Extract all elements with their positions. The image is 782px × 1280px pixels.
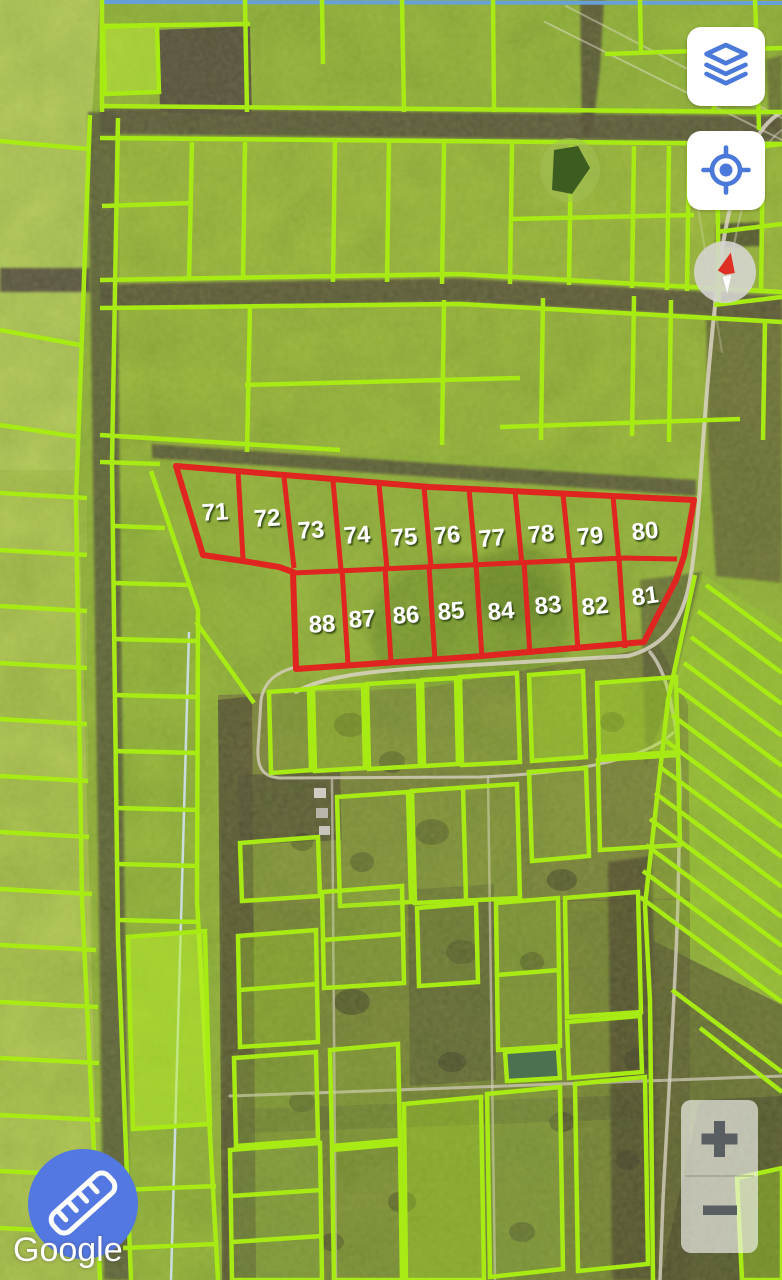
svg-text:80: 80 xyxy=(630,517,659,547)
svg-text:72: 72 xyxy=(253,504,281,532)
svg-text:84: 84 xyxy=(487,597,517,626)
svg-text:75: 75 xyxy=(390,523,419,552)
svg-text:79: 79 xyxy=(576,522,605,551)
svg-text:87: 87 xyxy=(348,605,377,634)
svg-text:76: 76 xyxy=(433,521,462,550)
svg-text:83: 83 xyxy=(533,591,562,621)
svg-text:82: 82 xyxy=(580,592,609,622)
svg-text:88: 88 xyxy=(308,610,336,638)
svg-text:77: 77 xyxy=(478,524,507,553)
svg-text:73: 73 xyxy=(297,516,326,545)
svg-text:86: 86 xyxy=(392,601,421,630)
svg-text:74: 74 xyxy=(343,521,372,550)
svg-text:78: 78 xyxy=(527,520,556,549)
svg-text:81: 81 xyxy=(630,581,660,611)
svg-text:71: 71 xyxy=(201,498,229,526)
svg-text:85: 85 xyxy=(437,597,466,626)
